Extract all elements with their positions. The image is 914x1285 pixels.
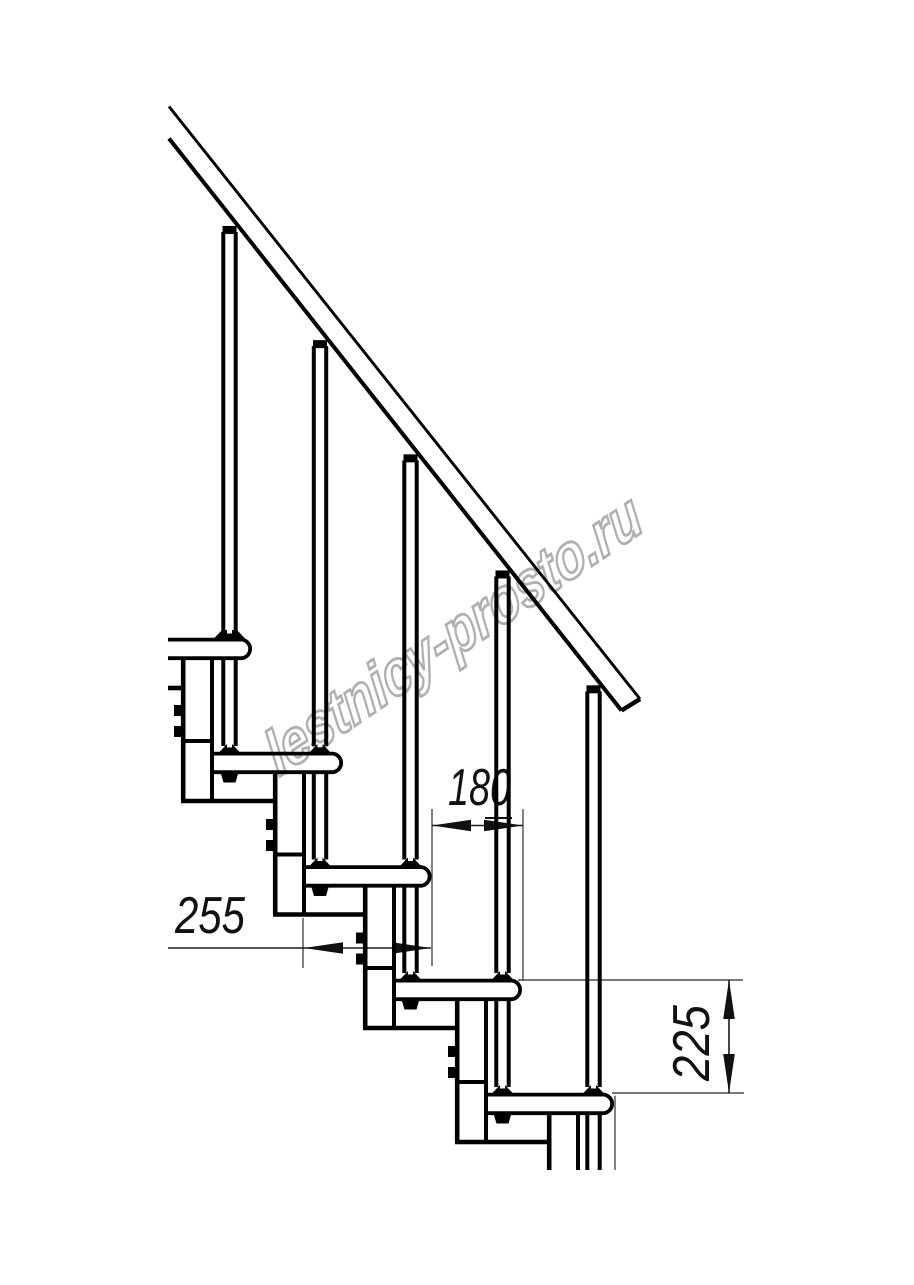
svg-text:225: 225 bbox=[663, 1004, 721, 1082]
svg-text:180: 180 bbox=[448, 759, 511, 817]
svg-text:255: 255 bbox=[174, 887, 246, 945]
